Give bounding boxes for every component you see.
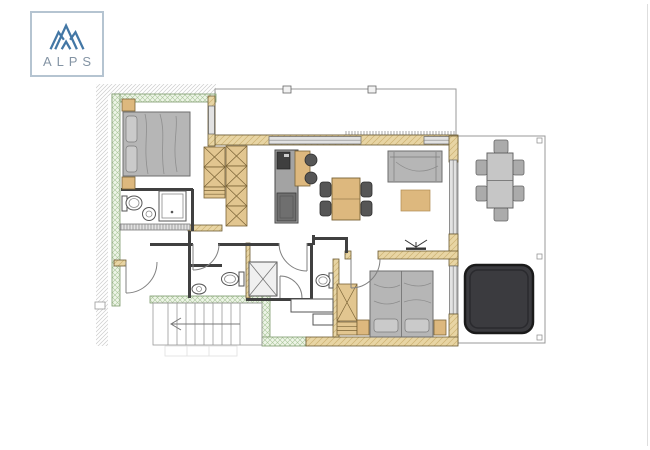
bath-window-ticks — [120, 224, 190, 230]
hot-tub — [465, 265, 533, 333]
door-bathroom2 — [280, 276, 302, 298]
bedroom-1 — [122, 99, 190, 189]
balcony-post — [283, 86, 291, 93]
wall-corridor — [312, 237, 348, 240]
bedroom-2 — [337, 271, 446, 337]
washbasin — [192, 284, 206, 294]
outdoor-chair — [513, 186, 524, 201]
shower-drain — [171, 211, 174, 214]
bar-stool — [305, 172, 317, 184]
door-hall — [126, 262, 157, 293]
storage-counter — [291, 299, 333, 312]
lower-flight-cut — [165, 346, 237, 356]
closet-cell — [204, 147, 225, 167]
nightstand — [122, 177, 135, 189]
floor-plan-drawing — [0, 0, 650, 450]
closet-cell — [226, 166, 247, 186]
wall-hall-b — [218, 243, 279, 246]
landing-stub — [95, 302, 105, 309]
shower-room — [249, 262, 277, 296]
wall-stub-hall — [114, 260, 126, 266]
wall-hall-a — [150, 243, 193, 246]
nightstand — [357, 320, 369, 335]
bar-stool — [305, 154, 317, 166]
wardrobe-closets — [204, 146, 247, 226]
wall-right-seg — [449, 136, 458, 162]
deck-marker — [537, 335, 542, 340]
pillow — [126, 116, 137, 142]
kitchen — [275, 150, 317, 223]
toilet-tank — [239, 272, 244, 286]
dining-chair — [361, 182, 372, 197]
deck-marker — [537, 138, 542, 143]
toilet-bowl — [316, 275, 330, 287]
dining-set — [320, 178, 372, 220]
outdoor-chair — [476, 186, 487, 201]
staircase — [95, 302, 262, 356]
wc — [192, 272, 244, 294]
stairs-direction-arrow — [171, 318, 240, 330]
dining-chair — [361, 201, 372, 216]
closet-cell — [204, 167, 225, 187]
wall-bedroom2-top-b — [378, 251, 458, 259]
ceiling-fan-icon — [405, 240, 427, 250]
terrace — [458, 136, 545, 343]
outdoor-chair — [494, 208, 508, 221]
washbasin — [143, 208, 156, 221]
wall-stairs-bottom — [262, 337, 306, 346]
rug — [401, 190, 430, 211]
closet-cell — [226, 186, 247, 206]
floor-plan-page: ALPS — [0, 0, 650, 450]
living-room — [388, 151, 442, 250]
nightstand — [122, 99, 135, 111]
bedroom1-window — [209, 106, 215, 134]
pillow — [374, 319, 398, 332]
insulation-ticks-top — [345, 131, 456, 135]
sheet-edge-line — [647, 4, 648, 446]
wall-bottom — [306, 337, 458, 346]
outdoor-chair — [476, 160, 487, 175]
outdoor-chair — [494, 140, 508, 153]
closet-cell — [226, 206, 247, 226]
wall-corridor-end — [345, 237, 348, 253]
toilet-bowl — [222, 273, 239, 286]
deck-marker — [537, 254, 542, 259]
wall-bath2-left — [310, 243, 313, 298]
outdoor-dining-set — [476, 140, 524, 221]
closet-drawers — [204, 187, 225, 198]
faucet — [284, 154, 289, 157]
wardrobe-2 — [337, 284, 357, 335]
dining-chair — [320, 182, 331, 197]
wall-right-seg — [449, 234, 458, 266]
nightstand — [434, 320, 446, 335]
en-suite-bathroom — [120, 191, 190, 230]
sofa — [388, 151, 442, 182]
closet-cell — [226, 146, 247, 166]
shower — [159, 191, 186, 221]
outdoor-chair — [513, 160, 524, 175]
door-shower-room — [279, 243, 307, 271]
balcony-deck — [215, 89, 456, 135]
pillow — [126, 146, 137, 172]
pillow — [405, 319, 429, 332]
wall-bedroom1-left — [112, 94, 120, 306]
storage-cabinet — [313, 314, 333, 325]
balcony-overhang — [215, 86, 456, 135]
dining-chair — [320, 201, 331, 216]
wall-bath1-right — [191, 189, 194, 231]
balcony-post — [368, 86, 376, 93]
